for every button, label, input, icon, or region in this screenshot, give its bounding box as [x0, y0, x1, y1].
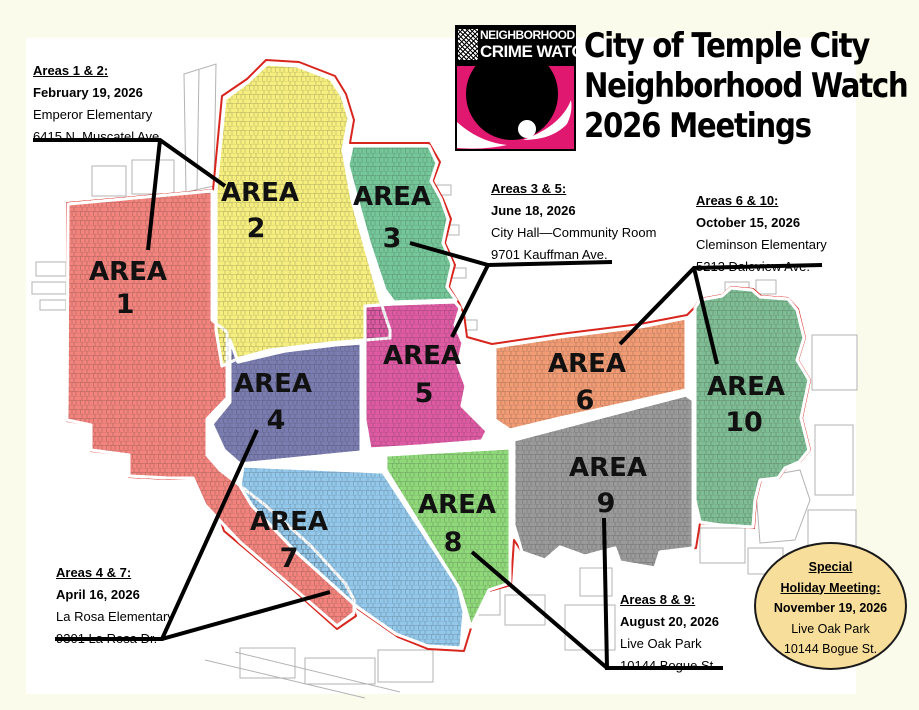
- title-line-1: City of Temple City: [584, 26, 876, 66]
- note-location: La Rosa Elementary: [56, 606, 246, 628]
- area-4-number: 4: [267, 405, 286, 436]
- area-10-label: AREA: [707, 372, 785, 402]
- area-5-label: AREA: [383, 341, 461, 371]
- logo-text: NEIGHBORHOOD CRIME WATCH: [480, 27, 574, 61]
- meeting-note-areas-6-10: Areas 6 & 10: October 15, 2026 Cleminson…: [696, 190, 886, 278]
- area-4-label: AREA: [234, 369, 312, 399]
- meeting-note-areas-4-7: Areas 4 & 7: April 16, 2026 La Rosa Elem…: [56, 562, 246, 650]
- logo-header-bar: NEIGHBORHOOD CRIME WATCH: [455, 25, 576, 64]
- area-6-number: 6: [576, 385, 595, 416]
- title-line-3: 2026 Meetings: [584, 106, 876, 146]
- crime-watch-logo: NEIGHBORHOOD CRIME WATCH: [455, 25, 576, 151]
- note-address: 5213 Daleview Ave.: [696, 256, 886, 278]
- area-9-number: 9: [597, 488, 616, 519]
- special-date: November 19, 2026: [756, 598, 905, 619]
- area-7-number: 7: [280, 543, 299, 574]
- special-heading-line-1: Special: [756, 557, 905, 578]
- area-3-number: 3: [383, 223, 402, 254]
- city-seal-icon: [458, 29, 478, 60]
- area-8-number: 8: [444, 527, 463, 558]
- area-8-label: AREA: [418, 490, 496, 520]
- special-location: Live Oak Park: [756, 619, 905, 640]
- note-location: City Hall—Community Room: [491, 222, 681, 244]
- note-location: Emperor Elementary: [33, 104, 223, 126]
- meeting-note-areas-1-2: Areas 1 & 2: February 19, 2026 Emperor E…: [33, 60, 223, 148]
- watch-eye-icon: [455, 64, 576, 151]
- logo-crime-watch-text: CRIME WATCH: [480, 43, 574, 61]
- area-2-number: 2: [247, 213, 266, 244]
- note-address: 9701 Kauffman Ave.: [491, 244, 681, 266]
- note-heading: Areas 1 & 2:: [33, 60, 223, 82]
- area-1-number: 1: [116, 289, 135, 320]
- page-title: City of Temple City Neighborhood Watch 2…: [584, 26, 876, 146]
- area-6-label: AREA: [548, 349, 626, 379]
- area-1-label: AREA: [89, 257, 167, 287]
- note-date: February 19, 2026: [33, 82, 223, 104]
- parcel-texture: [212, 340, 361, 464]
- note-date: June 18, 2026: [491, 200, 681, 222]
- area-10-number: 10: [725, 407, 763, 438]
- note-date: April 16, 2026: [56, 584, 246, 606]
- special-holiday-meeting-bubble: Special Holiday Meeting: November 19, 20…: [754, 542, 907, 670]
- note-heading: Areas 4 & 7:: [56, 562, 246, 584]
- special-heading-line-2: Holiday Meeting:: [756, 578, 905, 599]
- area-9-label: AREA: [569, 453, 647, 483]
- note-date: October 15, 2026: [696, 212, 886, 234]
- area-2-label: AREA: [221, 178, 299, 208]
- flyer-page: AREA 1 AREA 2 AREA 3 AREA 4 AREA 5 AREA …: [0, 0, 919, 710]
- meeting-note-areas-3-5: Areas 3 & 5: June 18, 2026 City Hall—Com…: [491, 178, 681, 266]
- note-address: 9301 La Rosa Dr.: [56, 628, 246, 650]
- title-line-2: Neighborhood Watch: [584, 66, 876, 106]
- note-location: Cleminson Elementary: [696, 234, 886, 256]
- note-heading: Areas 6 & 10:: [696, 190, 886, 212]
- note-heading: Areas 3 & 5:: [491, 178, 681, 200]
- area-3-label: AREA: [353, 182, 431, 212]
- special-address: 10144 Bogue St.: [756, 639, 905, 660]
- note-address: 6415 N. Muscatel Ave.: [33, 126, 223, 148]
- area-5-number: 5: [415, 378, 434, 409]
- logo-neighborhood-text: NEIGHBORHOOD: [480, 27, 574, 43]
- area-7-label: AREA: [250, 507, 328, 537]
